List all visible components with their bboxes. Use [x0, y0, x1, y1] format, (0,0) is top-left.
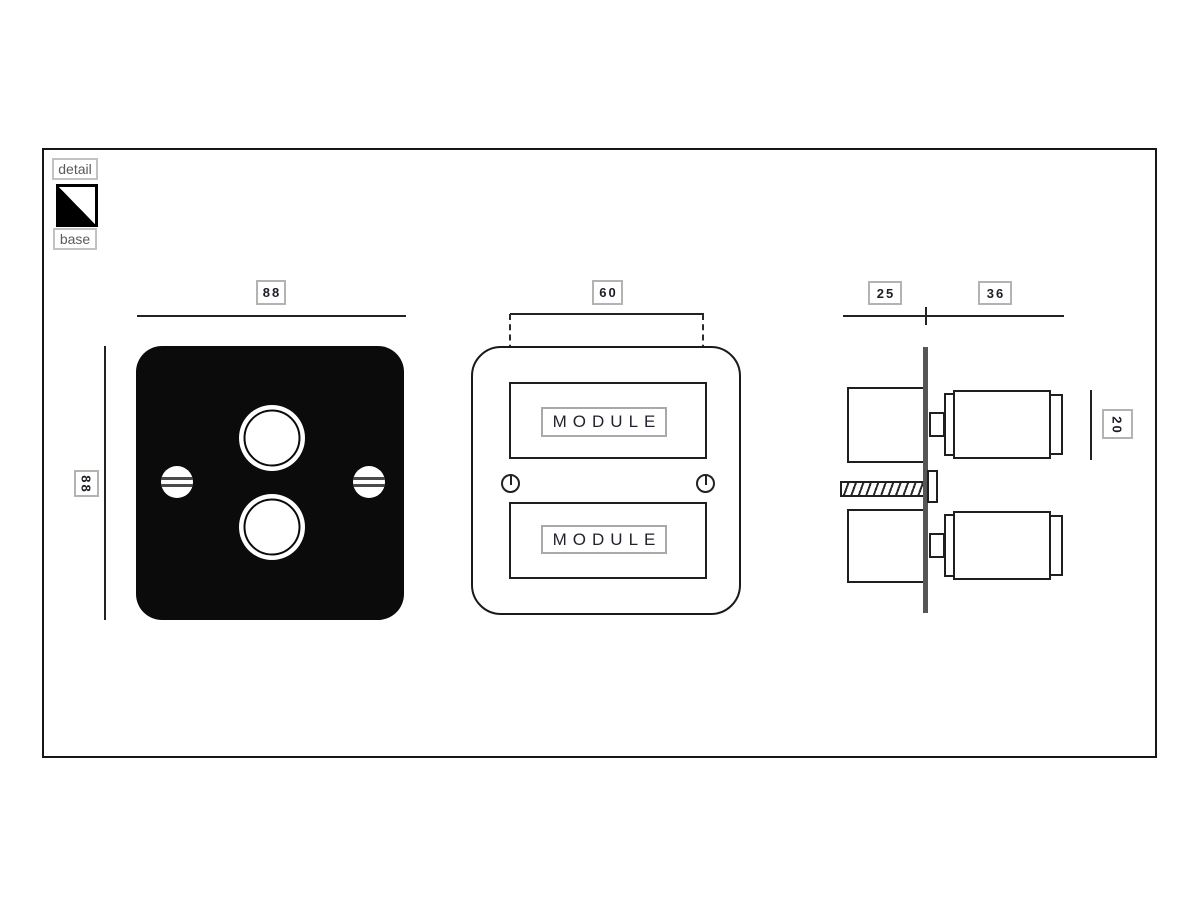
module-label-top-text: MODULE	[547, 412, 662, 432]
back-box-bottom	[847, 509, 926, 583]
knob-body-bottom	[953, 511, 1051, 580]
front-depth-dim-value: 36	[985, 286, 1005, 301]
knob-stem-bottom	[929, 533, 945, 558]
module-label-bottom-text: MODULE	[547, 530, 662, 550]
module-spacing-dim-label: 60	[592, 280, 623, 305]
front-view-plate	[136, 346, 404, 620]
front-height-dim-value: 88	[79, 473, 94, 493]
module-spacing-dim-line	[510, 313, 704, 315]
front-height-dim-label: 88	[74, 470, 99, 497]
fixing-screw-left-icon	[501, 474, 520, 493]
rod-nut	[927, 470, 938, 503]
knob-bottom	[239, 494, 305, 560]
knob-dim-line	[1090, 390, 1092, 460]
knob-body-top	[953, 390, 1051, 459]
knob-dim-label: 20	[1102, 409, 1133, 439]
back-depth-dim-value: 25	[875, 286, 895, 301]
knob-bottom-ring	[244, 499, 301, 556]
threaded-rod	[840, 481, 926, 497]
front-screw-right-icon	[353, 466, 385, 498]
detail-label: detail	[52, 158, 98, 180]
knob-stem-top	[929, 412, 945, 437]
front-screw-left-icon	[161, 466, 193, 498]
module-spacing-dim-value: 60	[597, 285, 617, 300]
depth-dim-tick	[925, 307, 927, 325]
base-label-text: base	[60, 231, 90, 247]
back-box-top	[847, 387, 926, 463]
front-depth-dim-label: 36	[978, 281, 1012, 305]
fixing-screw-right-icon	[696, 474, 715, 493]
knob-top	[239, 405, 305, 471]
knob-cap-bottom	[1049, 515, 1063, 576]
knob-top-ring	[244, 410, 301, 467]
front-width-dim-line	[137, 315, 406, 317]
module-label-top: MODULE	[541, 407, 667, 437]
detail-label-text: detail	[58, 161, 91, 177]
module-label-bottom: MODULE	[541, 525, 667, 554]
knob-dim-value: 20	[1110, 414, 1125, 434]
front-width-dim-label: 88	[256, 280, 286, 305]
back-depth-dim-label: 25	[868, 281, 902, 305]
knob-cap-top	[1049, 394, 1063, 455]
base-label: base	[53, 228, 97, 250]
front-width-dim-value: 88	[261, 285, 281, 300]
depth-dim-line	[843, 315, 1064, 317]
finish-swatch-icon	[56, 184, 98, 227]
front-height-dim-line	[104, 346, 106, 620]
technical-drawing-sheet: detail base 88 88 60 MODULE	[0, 0, 1200, 900]
